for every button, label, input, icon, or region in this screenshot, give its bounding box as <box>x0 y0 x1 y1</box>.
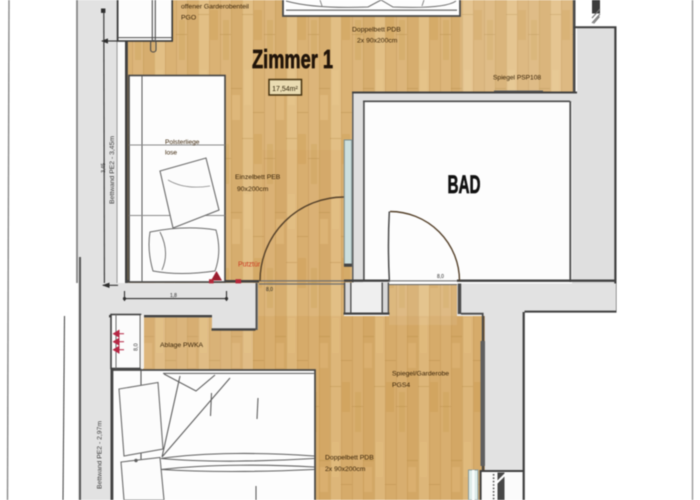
svg-text:BAD: BAD <box>448 171 481 199</box>
svg-text:Bettwand PE2 - 2,97m: Bettwand PE2 - 2,97m <box>97 421 104 489</box>
svg-text:PGO: PGO <box>181 14 196 21</box>
svg-text:90x200cm: 90x200cm <box>237 186 269 193</box>
svg-text:1,8: 1,8 <box>170 293 177 299</box>
svg-text:Polsterliege: Polsterliege <box>165 139 200 146</box>
svg-text:lose: lose <box>165 149 177 156</box>
svg-text:8,0: 8,0 <box>266 287 273 293</box>
svg-text:Spiegel PSP108: Spiegel PSP108 <box>493 75 541 82</box>
svg-text:Bettwand PE2 - 3,45m: Bettwand PE2 - 3,45m <box>109 136 116 204</box>
svg-text:8,0: 8,0 <box>437 274 444 280</box>
svg-text:8,0: 8,0 <box>134 343 140 351</box>
svg-text:Einzelbett PEB: Einzelbett PEB <box>235 174 281 181</box>
svg-text:3,45: 3,45 <box>101 163 107 173</box>
svg-text:offener Garderobenteil: offener Garderobenteil <box>181 4 249 11</box>
svg-text:Ablage PWKA: Ablage PWKA <box>160 342 204 349</box>
svg-text:Zimmer 1: Zimmer 1 <box>252 44 333 74</box>
svg-text:Spiegel/Garderobe: Spiegel/Garderobe <box>392 371 449 378</box>
svg-text:Putztür: Putztür <box>238 262 261 269</box>
svg-text:2x 90x200cm: 2x 90x200cm <box>357 38 398 45</box>
svg-text:2x 90x200cm: 2x 90x200cm <box>325 466 366 473</box>
svg-text:Doppelbett PDB: Doppelbett PDB <box>325 455 374 462</box>
svg-text:Doppelbett PDB: Doppelbett PDB <box>352 27 401 34</box>
svg-text:PGS4: PGS4 <box>392 382 410 389</box>
svg-text:17,54m²: 17,54m² <box>272 86 298 93</box>
